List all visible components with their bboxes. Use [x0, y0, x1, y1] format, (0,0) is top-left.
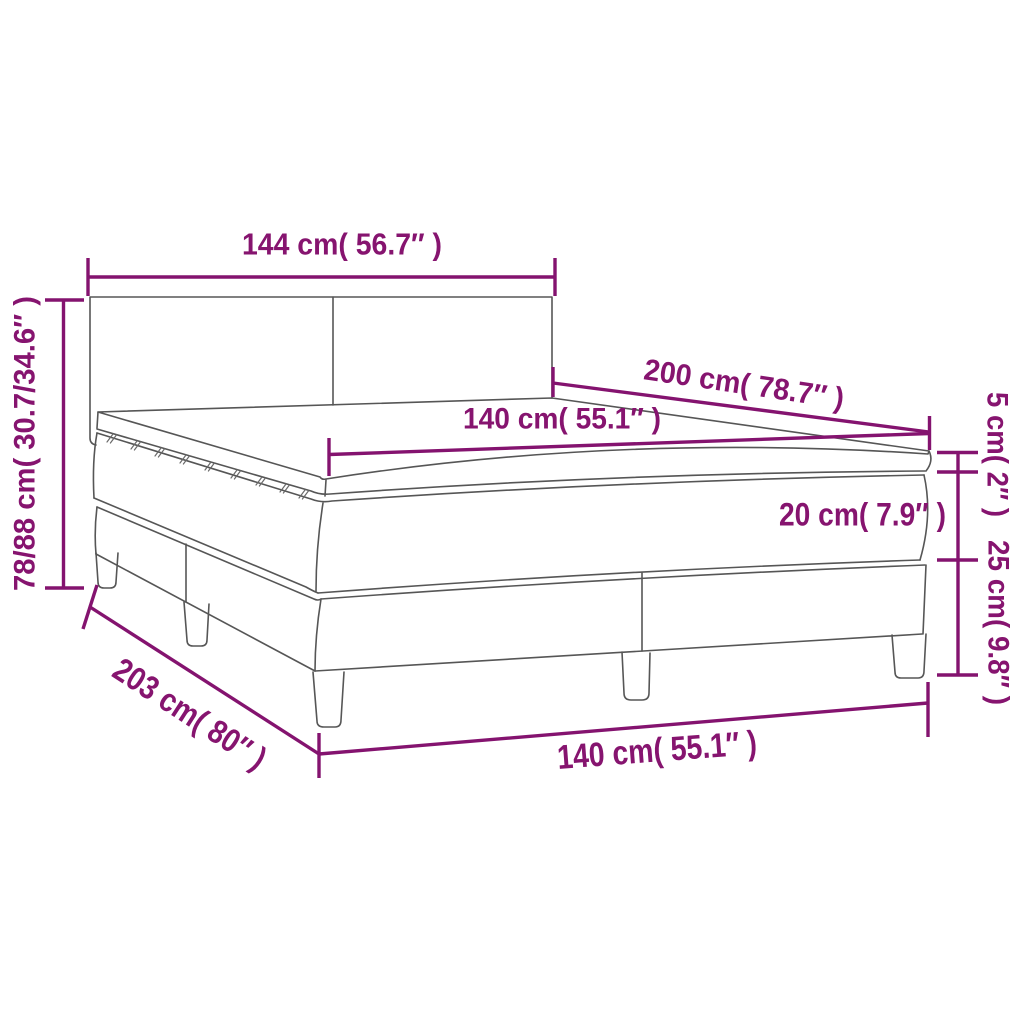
svg-text:20 cm( 7.9″ ): 20 cm( 7.9″ )	[779, 497, 946, 533]
svg-text:140 cm( 55.1″ ): 140 cm( 55.1″ )	[463, 403, 661, 436]
svg-text:144 cm( 56.7″ ): 144 cm( 56.7″ )	[242, 227, 442, 262]
svg-text:78/88 cm( 30.7/34.6″ ): 78/88 cm( 30.7/34.6″ )	[9, 296, 42, 591]
svg-text:25 cm( 9.8″ ): 25 cm( 9.8″ )	[982, 540, 1015, 705]
svg-text:5 cm( 2″ ): 5 cm( 2″ )	[981, 392, 1014, 517]
